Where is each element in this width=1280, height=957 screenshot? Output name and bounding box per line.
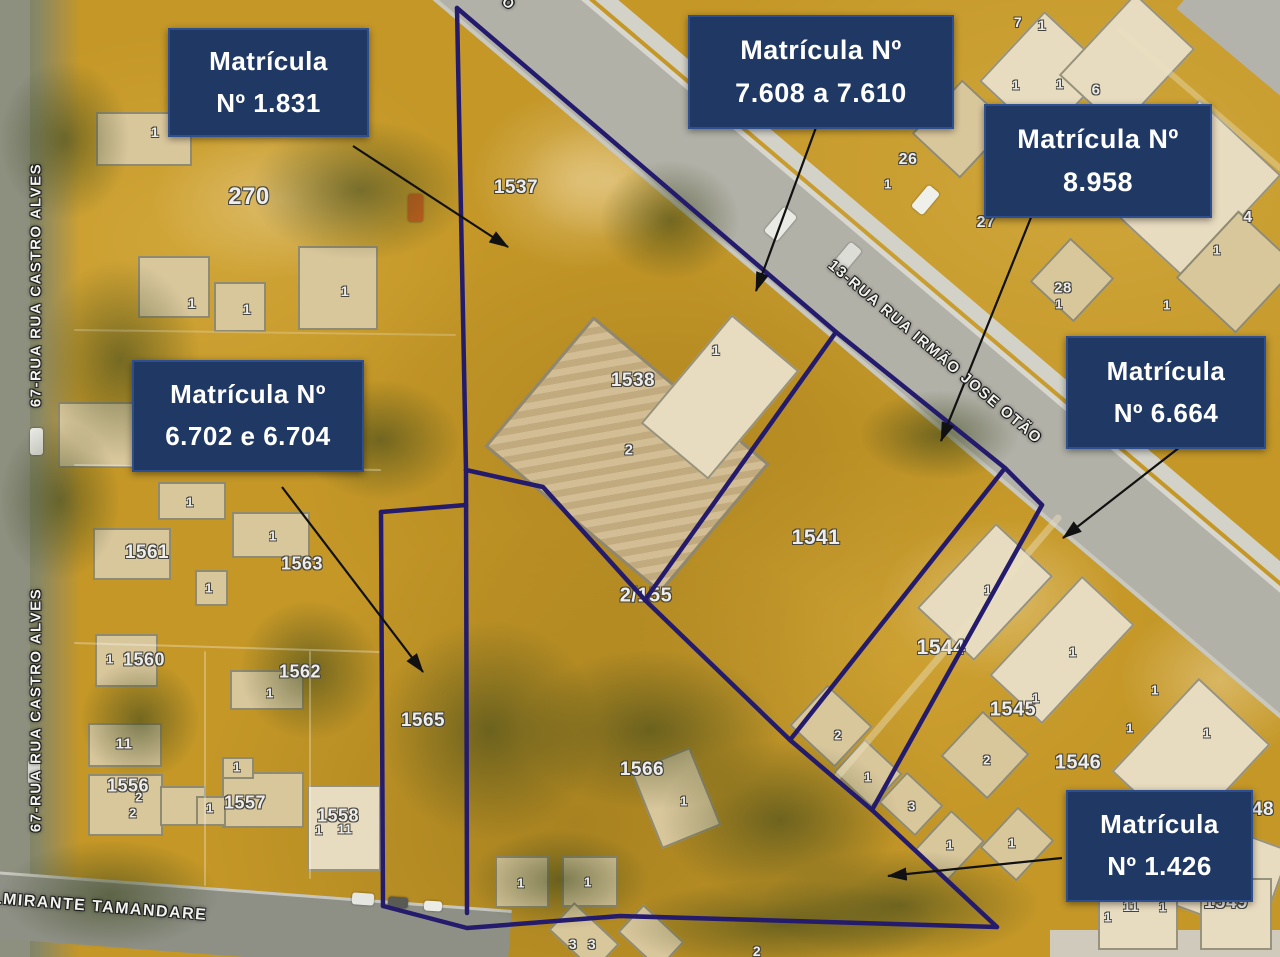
matricula-label-6664: Matrícula Nº 6.664 — [1066, 336, 1266, 449]
street-label-castro-alves-lower: 67-RUA RUA CASTRO ALVES — [28, 588, 45, 832]
annotation-arrow — [1063, 447, 1180, 538]
matricula-8958-line2: 8.958 — [1063, 161, 1133, 204]
matricula-7608-line1: Matrícula Nº — [740, 29, 901, 72]
matricula-8958-line1: Matrícula Nº — [1017, 118, 1178, 161]
matricula-label-1426: Matrícula Nº 1.426 — [1066, 790, 1253, 902]
property-boundary — [645, 332, 836, 600]
matricula-7608-line2: 7.608 a 7.610 — [735, 72, 907, 115]
matricula-label-6702-6704: Matrícula Nº 6.702 e 6.704 — [132, 360, 364, 472]
annotation-arrow — [282, 487, 423, 672]
property-boundary — [872, 505, 1042, 810]
annotation-arrow — [353, 146, 508, 247]
annotation-arrow — [756, 122, 818, 291]
property-boundary — [381, 505, 466, 512]
matricula-6702-line2: 6.702 e 6.704 — [165, 416, 331, 458]
matricula-1831-line1: Matrícula — [209, 41, 328, 83]
street-label-castro-alves-upper: 67-RUA RUA CASTRO ALVES — [28, 163, 45, 407]
matricula-1831-line2: Nº 1.831 — [216, 83, 321, 125]
matricula-6702-line1: Matrícula Nº — [170, 374, 326, 416]
parcel-line — [838, 518, 1058, 776]
matricula-1426-line2: Nº 1.426 — [1107, 846, 1212, 888]
annotation-arrow — [888, 858, 1062, 876]
aerial-map: 270111115371538122/155154115441545115464… — [0, 0, 1280, 957]
parcel-line — [75, 643, 380, 652]
matricula-label-8958: Matrícula Nº 8.958 — [984, 104, 1212, 218]
matricula-label-7608-7610: Matrícula Nº 7.608 a 7.610 — [688, 15, 954, 129]
property-boundary — [381, 512, 383, 906]
matricula-6664-line2: Nº 6.664 — [1114, 393, 1219, 435]
matricula-6664-line1: Matrícula — [1107, 351, 1226, 393]
property-boundary — [466, 470, 997, 927]
property-boundary — [457, 8, 466, 470]
parcel-line — [75, 330, 455, 335]
matricula-1426-line1: Matrícula — [1100, 804, 1219, 846]
matricula-label-1831: Matrícula Nº 1.831 — [168, 28, 369, 137]
property-boundary — [790, 468, 1005, 740]
property-boundary — [383, 906, 997, 928]
property-boundary — [466, 470, 467, 913]
